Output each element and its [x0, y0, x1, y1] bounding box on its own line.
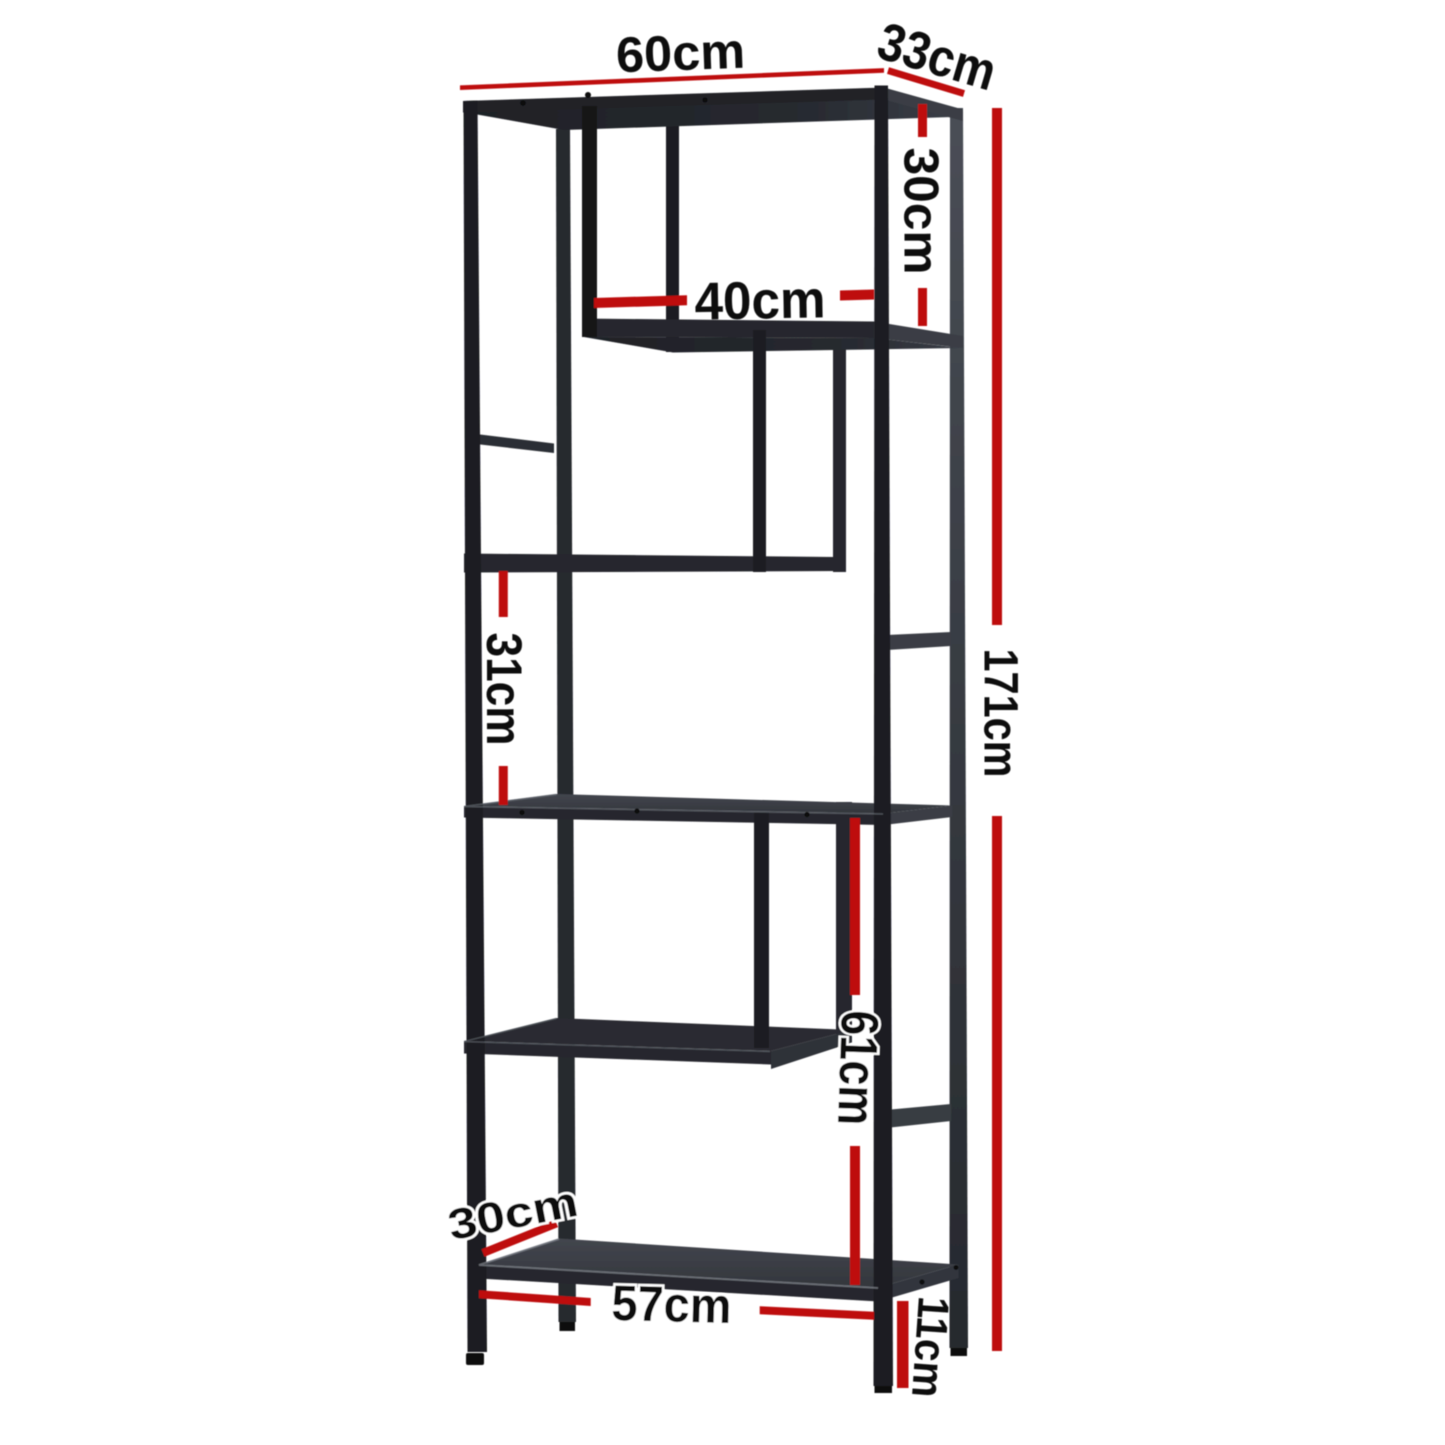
svg-text:61cm: 61cm: [826, 1010, 889, 1127]
svg-text:57cm: 57cm: [611, 1275, 732, 1334]
svg-text:31cm: 31cm: [476, 633, 532, 746]
svg-text:11cm: 11cm: [902, 1295, 958, 1399]
svg-text:40cm: 40cm: [694, 270, 826, 331]
svg-text:60cm: 60cm: [615, 23, 746, 83]
svg-text:30cm: 30cm: [894, 148, 948, 275]
svg-text:171cm: 171cm: [974, 649, 1027, 778]
